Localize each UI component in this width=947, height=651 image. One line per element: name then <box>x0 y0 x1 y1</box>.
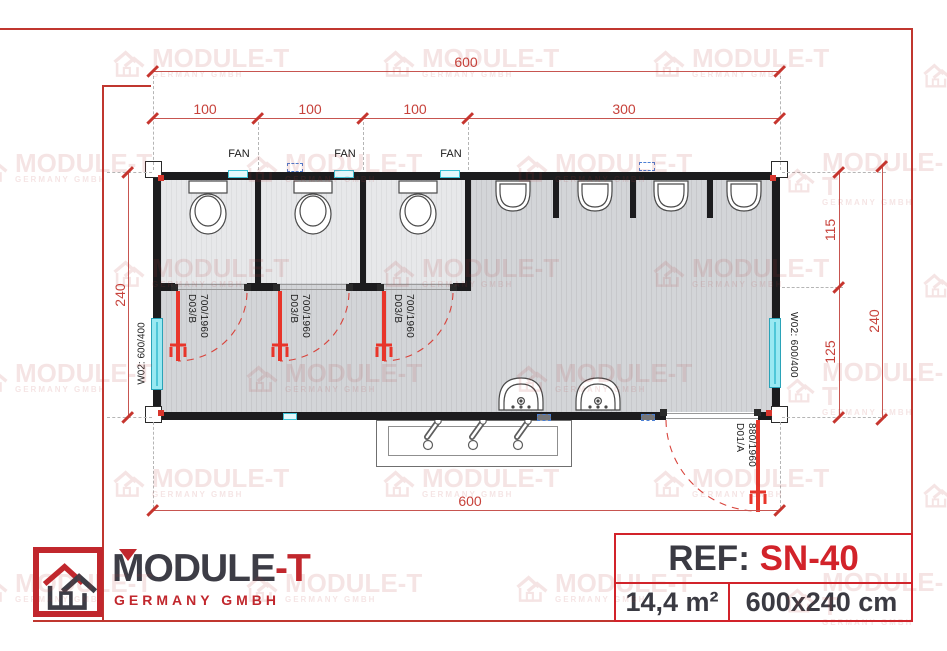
guide-line <box>468 122 469 170</box>
door-hinge <box>377 284 384 291</box>
guide-line <box>782 172 886 173</box>
wall-right-upper <box>772 172 780 318</box>
door-frame-line <box>277 289 349 290</box>
entry-door-label: D01/A880/1960 <box>733 423 757 467</box>
dim-right-upper: 115 <box>822 207 838 253</box>
ref-divider <box>616 582 911 584</box>
dim-line-bottom-total <box>153 510 780 511</box>
dim-bottom-total: 600 <box>444 493 496 509</box>
door-frame-line <box>277 284 349 285</box>
guide-line <box>107 172 152 173</box>
door-frame-line <box>175 289 247 290</box>
window-right-glazing <box>774 322 776 384</box>
dim-top-total: 600 <box>440 54 492 70</box>
urinal-partition <box>553 180 559 218</box>
guide-line <box>153 422 154 508</box>
company-logo-subtitle: GERMANY GMBH <box>114 592 280 608</box>
urinal-partition <box>630 180 636 218</box>
fan-label: FAN <box>219 148 259 160</box>
door-hinge <box>346 284 353 291</box>
guide-line <box>780 422 781 508</box>
tap-icon <box>469 418 487 450</box>
floor-plan-sheet: 600 100 100 100 300 600 240 115 125 240 … <box>0 0 947 651</box>
door-handle-icon <box>170 345 766 504</box>
door-frame-line <box>666 413 758 414</box>
corner-fitting <box>771 406 788 423</box>
corner-accent <box>158 410 164 416</box>
fan-label: FAN <box>431 148 471 160</box>
ref-title: REF: SN-40 <box>616 539 911 579</box>
door-hinge <box>244 284 251 291</box>
company-logo-brand: MODULE-T <box>112 547 310 591</box>
door-hinge <box>660 409 667 416</box>
pipe-mark <box>537 414 551 421</box>
urinal-icon <box>654 181 688 211</box>
dim-line-right-split <box>839 172 840 417</box>
ref-value: SN-40 <box>760 539 859 578</box>
guide-line <box>107 417 152 418</box>
door-frame-line <box>666 418 758 419</box>
dim-segment-2: 100 <box>287 101 333 117</box>
logo-roof-mark-icon <box>119 549 137 561</box>
corner-accent <box>158 175 164 181</box>
guide-line <box>782 417 886 418</box>
window-right-label: W02: 600/400 <box>787 312 799 378</box>
dim-left-total: 240 <box>112 272 128 318</box>
tap-icon <box>424 418 442 450</box>
fan-label: FAN <box>325 148 365 160</box>
wall-bottom-left-of-door <box>153 412 666 420</box>
company-logo-house-icon <box>41 555 99 613</box>
door-swing-arc <box>178 293 757 511</box>
sink-icon <box>576 378 620 410</box>
door-frame-line <box>175 284 247 285</box>
stall-partition-2 <box>360 180 366 291</box>
window-left-glazing <box>156 322 158 386</box>
door-hinge <box>450 284 457 291</box>
door-hinge <box>273 284 280 291</box>
urinal-partition <box>707 180 713 218</box>
dim-line-left-total <box>128 172 129 417</box>
guide-line <box>363 122 364 170</box>
fan-vent <box>334 170 354 178</box>
fan-vent <box>228 170 248 178</box>
guide-line <box>782 287 843 288</box>
stall-door-label: D03/B700/1960 <box>391 294 415 338</box>
pipe-mark <box>283 413 297 420</box>
stall-door-label: D03/B700/1960 <box>185 294 209 338</box>
dim-right-total: 240 <box>866 298 882 344</box>
urinal-icon <box>578 181 612 211</box>
guide-line <box>258 122 259 170</box>
door-frame-line <box>381 284 453 285</box>
toilet-icon <box>294 181 332 234</box>
toilet-icon <box>399 181 437 234</box>
dim-line-top-total <box>153 71 780 72</box>
ref-size: 600x240 cm <box>730 587 913 618</box>
brand-accent: -T <box>275 547 310 590</box>
ref-box: REF: SN-40 14,4 m² 600x240 cm <box>614 533 913 622</box>
sink-icon <box>499 378 543 410</box>
company-logo-frame <box>33 547 103 617</box>
door-frame-line <box>381 289 453 290</box>
dim-line-right-total <box>882 166 883 419</box>
guide-line <box>780 76 781 170</box>
toilet-icon <box>189 181 227 234</box>
corner-accent <box>770 175 776 181</box>
pipe-mark <box>641 414 655 421</box>
ref-label: REF: <box>668 539 759 578</box>
stall-partition-1 <box>255 180 261 291</box>
door-hinge <box>754 409 761 416</box>
dim-segment-1: 100 <box>182 101 228 117</box>
fan-vent <box>440 170 460 178</box>
ref-area: 14,4 m² <box>616 587 728 618</box>
corner-accent <box>766 410 772 416</box>
door-hinge <box>171 284 178 291</box>
service-connection-mark <box>639 162 655 171</box>
stall-partition-3 <box>465 180 471 291</box>
stall-door-label: D03/B700/1960 <box>287 294 311 338</box>
wall-left-upper <box>153 172 161 318</box>
service-connection-mark <box>287 163 303 172</box>
tap-icon <box>514 418 532 450</box>
door-leaf <box>178 291 758 512</box>
dim-right-lower: 125 <box>822 329 838 375</box>
urinal-icon <box>496 181 530 211</box>
dim-segment-3: 100 <box>392 101 438 117</box>
urinal-icon <box>727 181 761 211</box>
guide-line <box>153 76 154 170</box>
window-left-label: W02: 600/400 <box>137 316 148 392</box>
dim-segment-4: 300 <box>601 101 647 117</box>
